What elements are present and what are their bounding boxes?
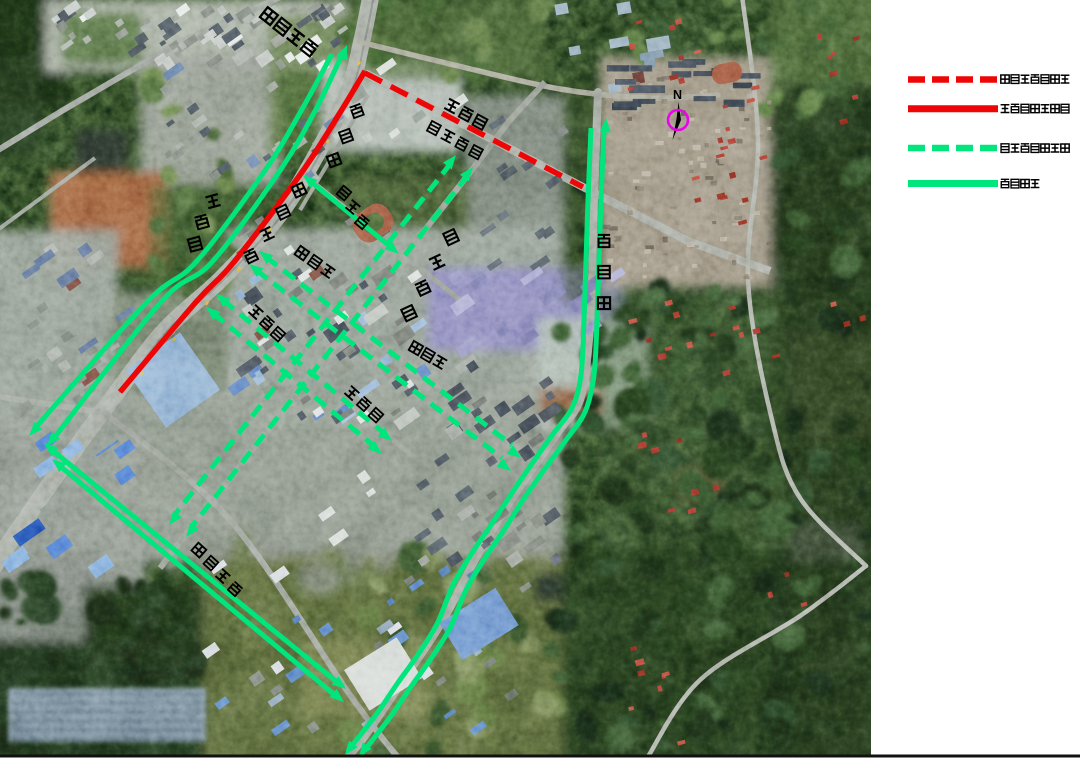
svg-text:N: N [673,88,682,102]
